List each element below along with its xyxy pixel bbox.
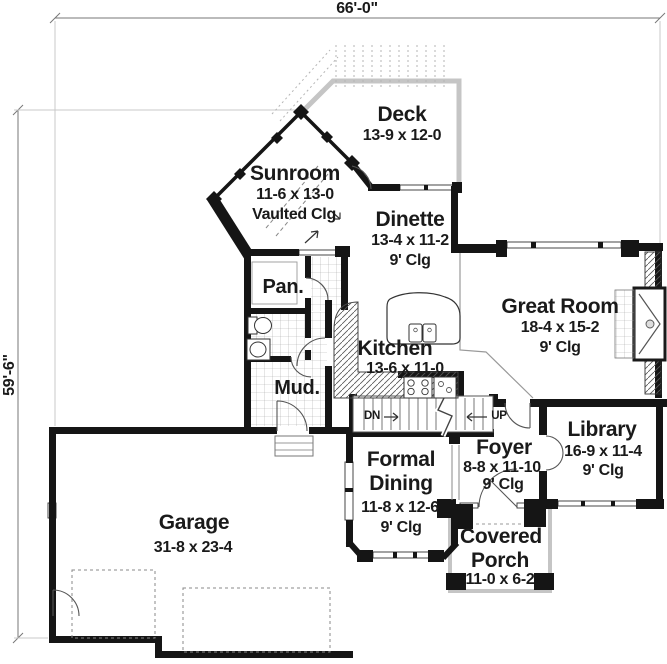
room-size-deck: 13-9 x 12-0 bbox=[363, 128, 442, 144]
room-size-kitchen: 13-6 x 11-0 bbox=[366, 361, 444, 377]
room-size-dining: 11-8 x 12-6 bbox=[361, 500, 439, 516]
room-ceiling-dinette: 9' Clg bbox=[389, 253, 430, 269]
room-label-dining-line1: Formal bbox=[367, 449, 435, 470]
toilet-icon bbox=[248, 317, 272, 334]
floor-plan: 66'-0" 59'-6" Deck 13-9 x 12-0 Sunroom 1… bbox=[0, 0, 667, 664]
room-size-dinette: 13-4 x 11-2 bbox=[371, 233, 449, 249]
library-french-doors bbox=[546, 436, 563, 470]
room-label-great-room: Great Room bbox=[501, 296, 618, 317]
great-room-door bbox=[505, 403, 530, 428]
room-ceiling-dining: 9' Clg bbox=[380, 520, 421, 536]
room-label-mud: Mud. bbox=[274, 378, 319, 398]
room-ceiling-library: 9' Clg bbox=[582, 463, 623, 479]
garage-side-door bbox=[53, 590, 79, 616]
stove-icon bbox=[404, 377, 432, 398]
counter-appliance bbox=[434, 377, 456, 398]
room-label-deck: Deck bbox=[377, 104, 426, 125]
room-size-foyer: 8-8 x 11-10 bbox=[463, 460, 541, 476]
room-label-garage: Garage bbox=[159, 512, 230, 533]
fireplace-icon bbox=[615, 252, 665, 394]
room-ceiling-sunroom: Vaulted Clg bbox=[252, 207, 336, 223]
bath-sink-icon bbox=[247, 339, 270, 360]
overall-width-dimension: 66'-0" bbox=[336, 1, 378, 17]
room-label-library: Library bbox=[567, 419, 636, 440]
cased-opening bbox=[452, 445, 459, 500]
stairs-down-label: DN bbox=[364, 411, 380, 423]
room-label-dinette: Dinette bbox=[375, 209, 444, 230]
room-label-sunroom: Sunroom bbox=[250, 163, 340, 184]
garage-landing-steps bbox=[275, 436, 313, 456]
room-label-porch-line1: Covered bbox=[460, 526, 542, 547]
room-size-great-room: 18-4 x 15-2 bbox=[521, 320, 600, 336]
overall-depth-dimension: 59'-6" bbox=[2, 354, 18, 396]
room-size-sunroom: 11-6 x 13-0 bbox=[256, 187, 334, 203]
room-label-kitchen: Kitchen bbox=[358, 338, 433, 359]
room-label-pantry: Pan. bbox=[262, 277, 303, 297]
room-size-garage: 31-8 x 23-4 bbox=[154, 540, 233, 556]
room-label-foyer: Foyer bbox=[476, 437, 532, 458]
room-ceiling-foyer: 9' Clg bbox=[482, 477, 523, 493]
room-size-library: 16-9 x 11-4 bbox=[564, 444, 642, 460]
room-ceiling-great-room: 9' Clg bbox=[539, 340, 580, 356]
room-label-dining-line2: Dining bbox=[369, 473, 433, 494]
room-label-porch-line2: Porch bbox=[471, 550, 529, 571]
room-size-porch: 11-0 x 6-2 bbox=[465, 572, 534, 588]
stairs-up-label: UP bbox=[491, 411, 506, 423]
